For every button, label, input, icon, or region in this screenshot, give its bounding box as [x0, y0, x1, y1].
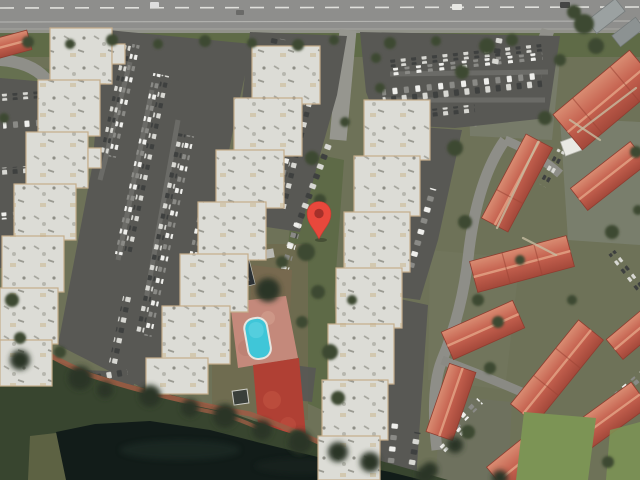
- satellite-map-canvas[interactable]: [0, 0, 640, 480]
- gazebo: [232, 389, 249, 405]
- map-frame: [0, 0, 640, 480]
- car-on-road: [560, 2, 570, 8]
- car-on-road: [236, 10, 244, 15]
- car-on-road: [452, 4, 462, 10]
- marker-shadow: [315, 238, 327, 242]
- pin-dot: [314, 209, 323, 218]
- car-on-road: [150, 2, 159, 8]
